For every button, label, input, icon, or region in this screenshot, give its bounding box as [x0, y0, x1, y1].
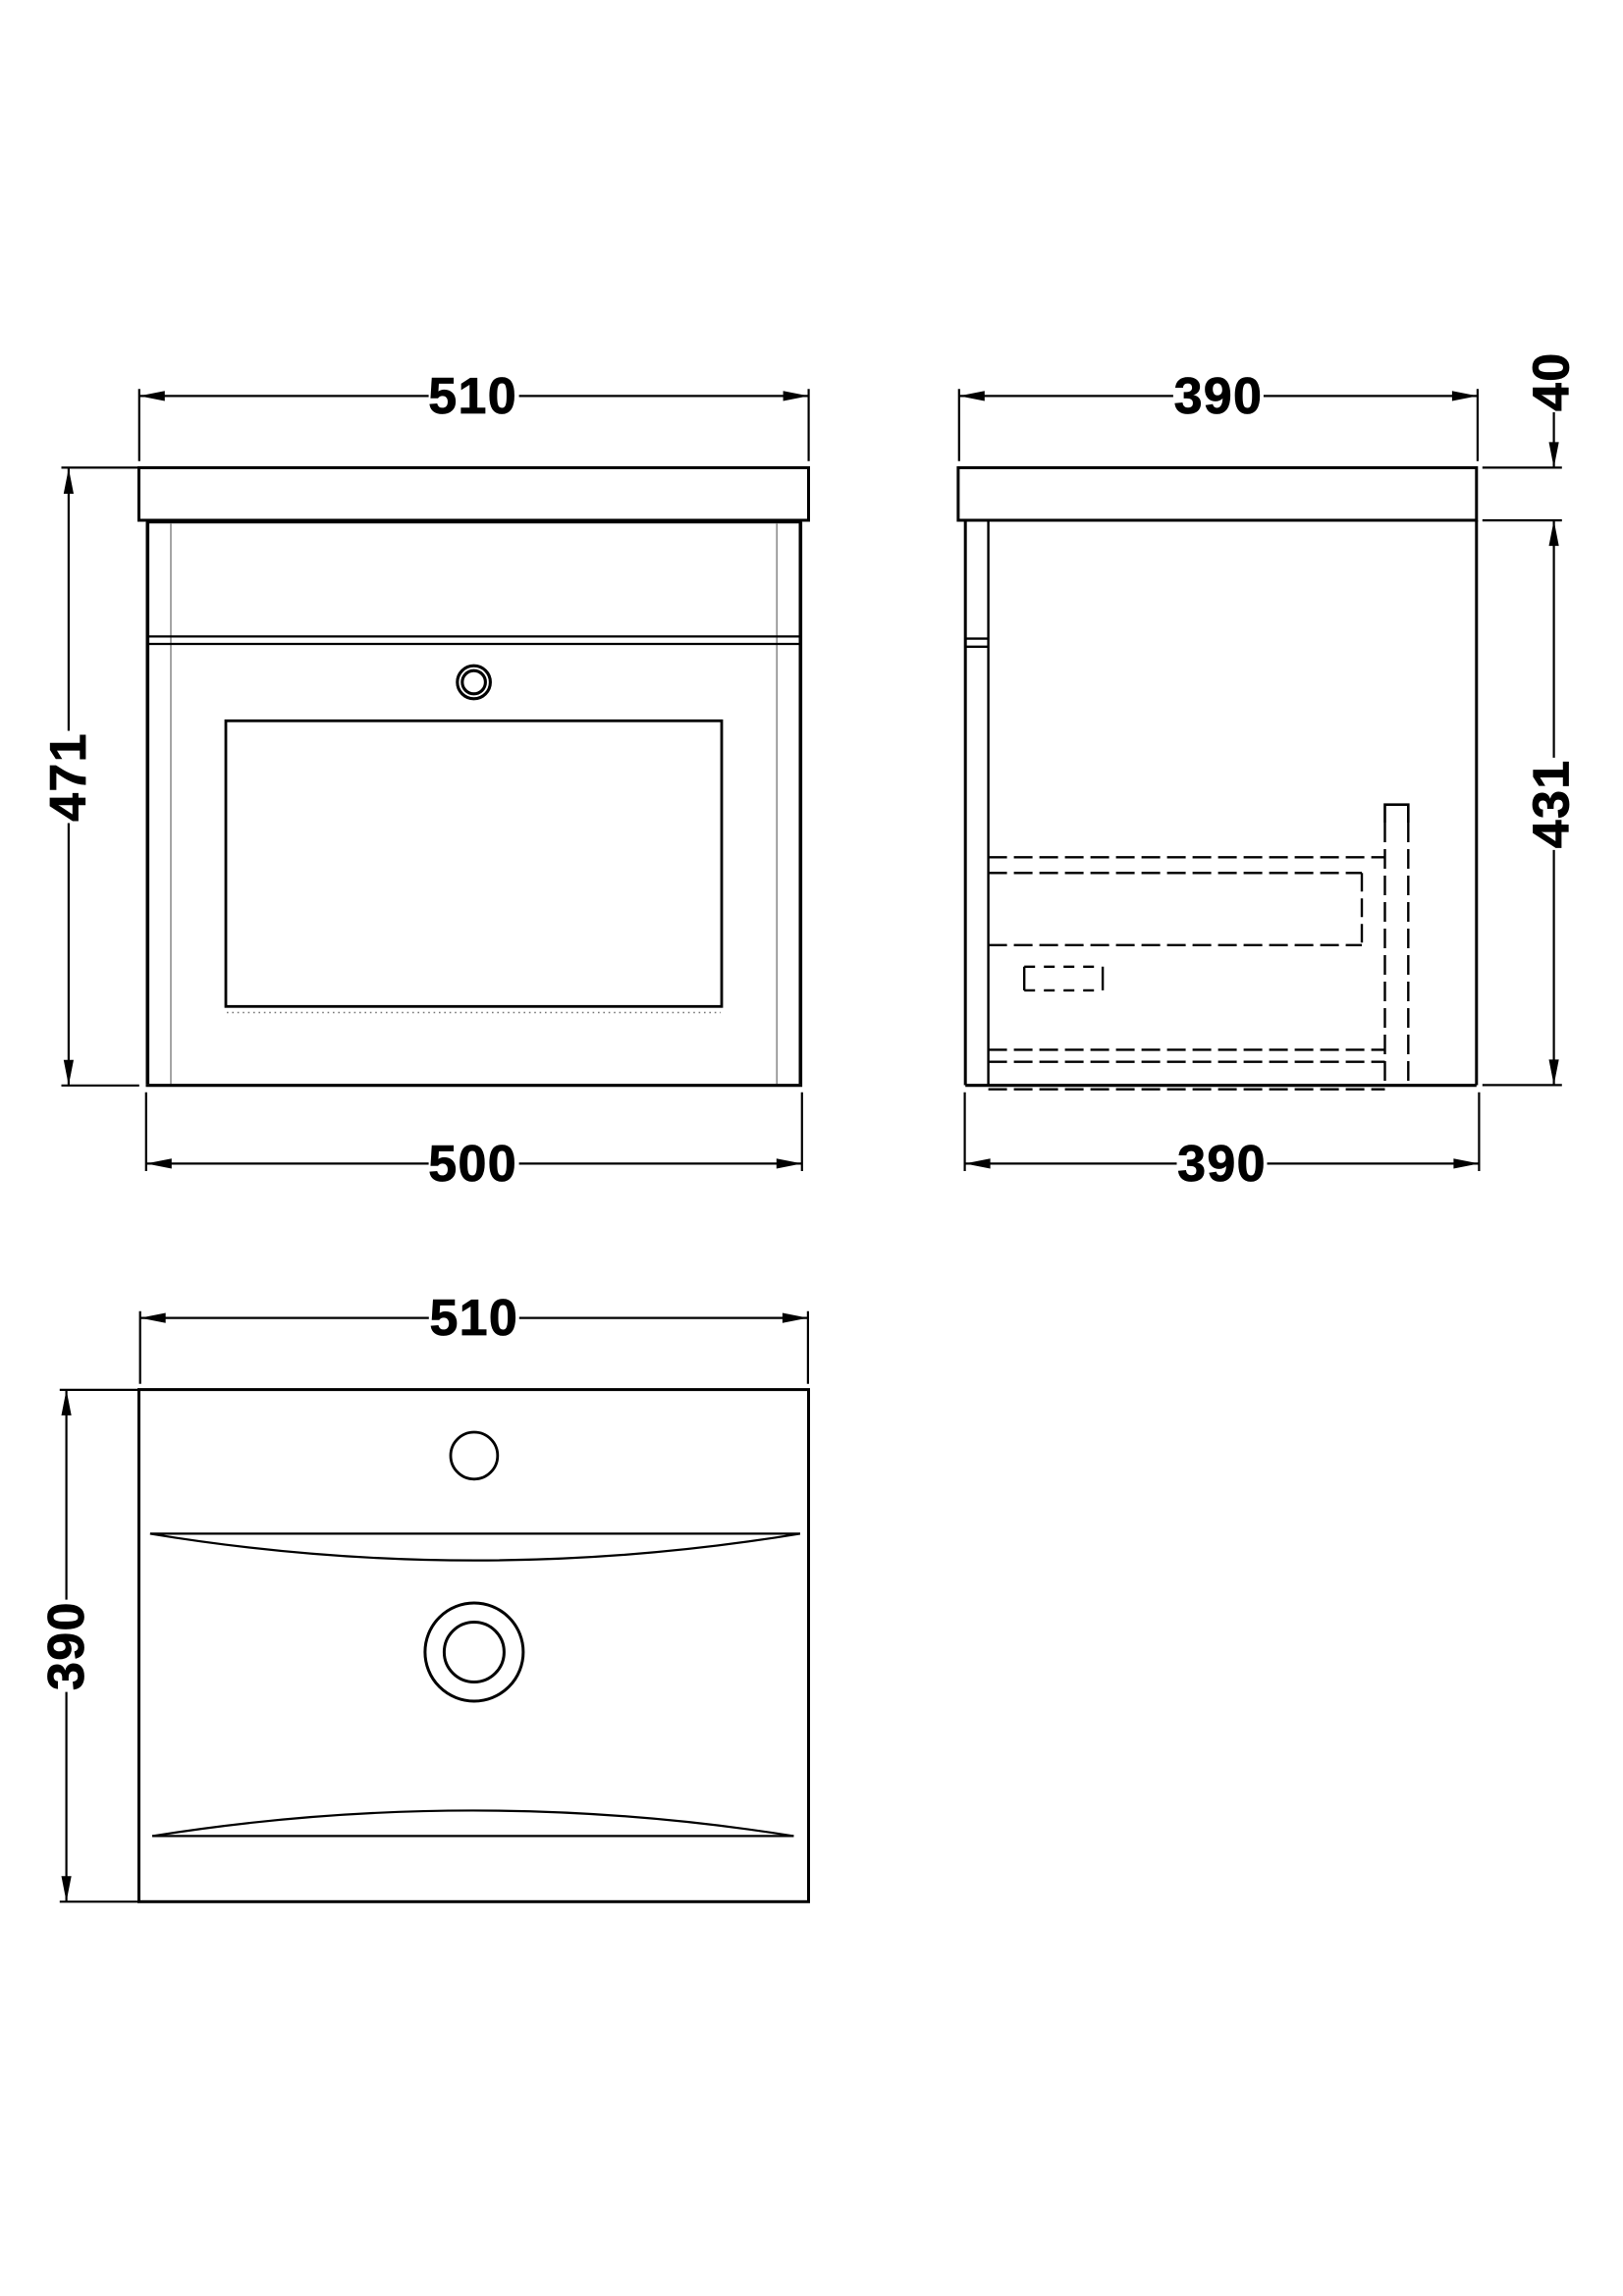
svg-text:510: 510	[429, 1290, 518, 1347]
svg-text:471: 471	[40, 732, 97, 822]
svg-text:40: 40	[1524, 352, 1581, 411]
svg-text:431: 431	[1524, 760, 1581, 849]
svg-text:390: 390	[1174, 368, 1264, 425]
svg-text:390: 390	[38, 1601, 95, 1690]
svg-text:390: 390	[1177, 1136, 1267, 1193]
svg-text:510: 510	[428, 368, 517, 425]
svg-text:500: 500	[428, 1136, 517, 1193]
